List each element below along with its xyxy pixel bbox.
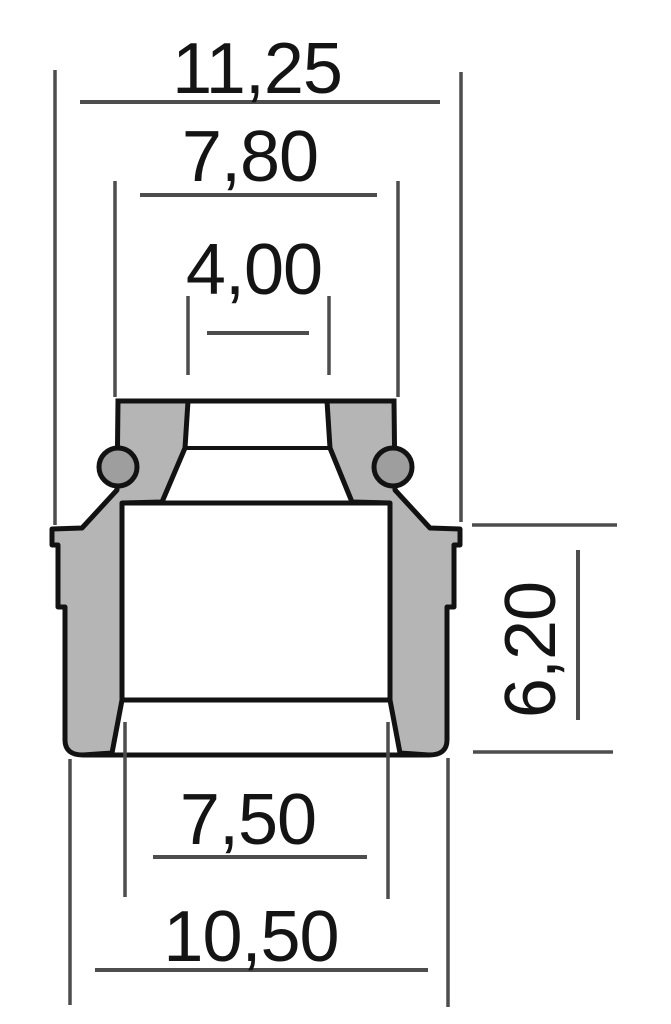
- dimension-label: 10,50: [163, 897, 338, 977]
- drawing-canvas: 11,25 7,80 4,00 6,20 7,50: [0, 0, 671, 1024]
- garter-spring-right: [374, 448, 412, 486]
- dimension-stem-bore-diameter: 4,00: [186, 230, 329, 375]
- dimension-lower-bore-diameter: 7,50: [125, 722, 388, 899]
- dimension-body-height: 6,20: [472, 525, 617, 752]
- dimension-label: 6,20: [491, 582, 571, 718]
- valve-seal-cross-section-drawing: 11,25 7,80 4,00 6,20 7,50: [0, 0, 671, 1024]
- dimension-label: 7,50: [180, 780, 316, 860]
- garter-spring-left: [99, 448, 137, 486]
- dimension-label: 4,00: [186, 230, 322, 310]
- dimension-label: 11,25: [172, 29, 342, 109]
- dimension-label: 7,80: [182, 117, 318, 197]
